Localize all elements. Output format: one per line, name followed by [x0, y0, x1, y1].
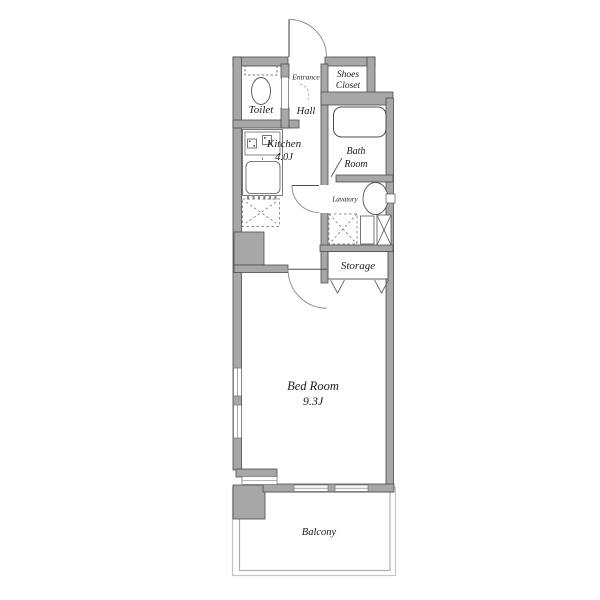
- wall-toilet-right-upper: [281, 64, 289, 78]
- room-labels: Toilet Entrance Hall Shoes Closet Kitche…: [249, 70, 376, 538]
- wall-balcony-pillar: [233, 485, 265, 519]
- toilet-door-panel: [282, 77, 289, 109]
- toilet-bowl-icon: [252, 78, 271, 105]
- wall-bottom-notch: [236, 469, 277, 477]
- kitchen-label: Kitchen: [266, 138, 302, 150]
- pipe-space-icon: [377, 215, 391, 245]
- wall-toilet-right-lower: [281, 108, 289, 128]
- wall-under-shoes-band: [321, 92, 393, 105]
- floor-plan: Toilet Entrance Hall Shoes Closet Kitche…: [0, 0, 600, 600]
- toilet-label: Toilet: [249, 104, 275, 116]
- storage-label: Storage: [341, 260, 375, 272]
- counter-edge-hatch: [248, 196, 276, 200]
- cabinet-icon: [361, 216, 375, 244]
- kitchen-size-label: 4.0J: [275, 152, 294, 163]
- wall-storage-top: [320, 245, 393, 252]
- storage-folding-door-icon: [331, 280, 389, 293]
- entrance-door-arc: [289, 20, 327, 58]
- bathtub-icon: [334, 107, 387, 137]
- entrance-label: Entrance: [291, 73, 320, 82]
- refrigerator-space-icon: [243, 199, 280, 227]
- lavatory-faucet-icon: [386, 194, 395, 203]
- bed-room-label: Bed Room: [287, 379, 339, 393]
- wall-bedroom-bottom: [263, 484, 394, 492]
- hall-label: Hall: [296, 106, 316, 117]
- entrance-step-line: [300, 84, 309, 100]
- bed-room-size-label: 9.3J: [303, 394, 324, 408]
- washing-machine-space-icon: [329, 214, 357, 244]
- floor-plan-page: Toilet Entrance Hall Shoes Closet Kitche…: [0, 0, 600, 600]
- wall-bedroom-top: [234, 265, 288, 273]
- wall-kitchen-block: [234, 232, 264, 265]
- bath-room-label-1: Bath: [347, 146, 366, 157]
- shoes-closet-label-1: Shoes: [337, 70, 359, 80]
- bath-room-label-2: Room: [343, 159, 367, 170]
- shoes-closet-label-2: Closet: [336, 81, 361, 91]
- toilet-tank-icon: [245, 66, 277, 75]
- balcony-label: Balcony: [302, 527, 337, 538]
- lavatory-door-arc: [292, 186, 319, 213]
- lavatory-door-gap: [321, 185, 329, 213]
- lavatory-sink-icon: [363, 183, 388, 215]
- kitchen-sink-icon: [246, 162, 280, 194]
- bath-door-leaf: [331, 158, 342, 177]
- wall-bath-lavatory: [336, 175, 393, 182]
- wall-right-outer: [386, 98, 394, 492]
- lavatory-label: Lavatory: [331, 196, 358, 204]
